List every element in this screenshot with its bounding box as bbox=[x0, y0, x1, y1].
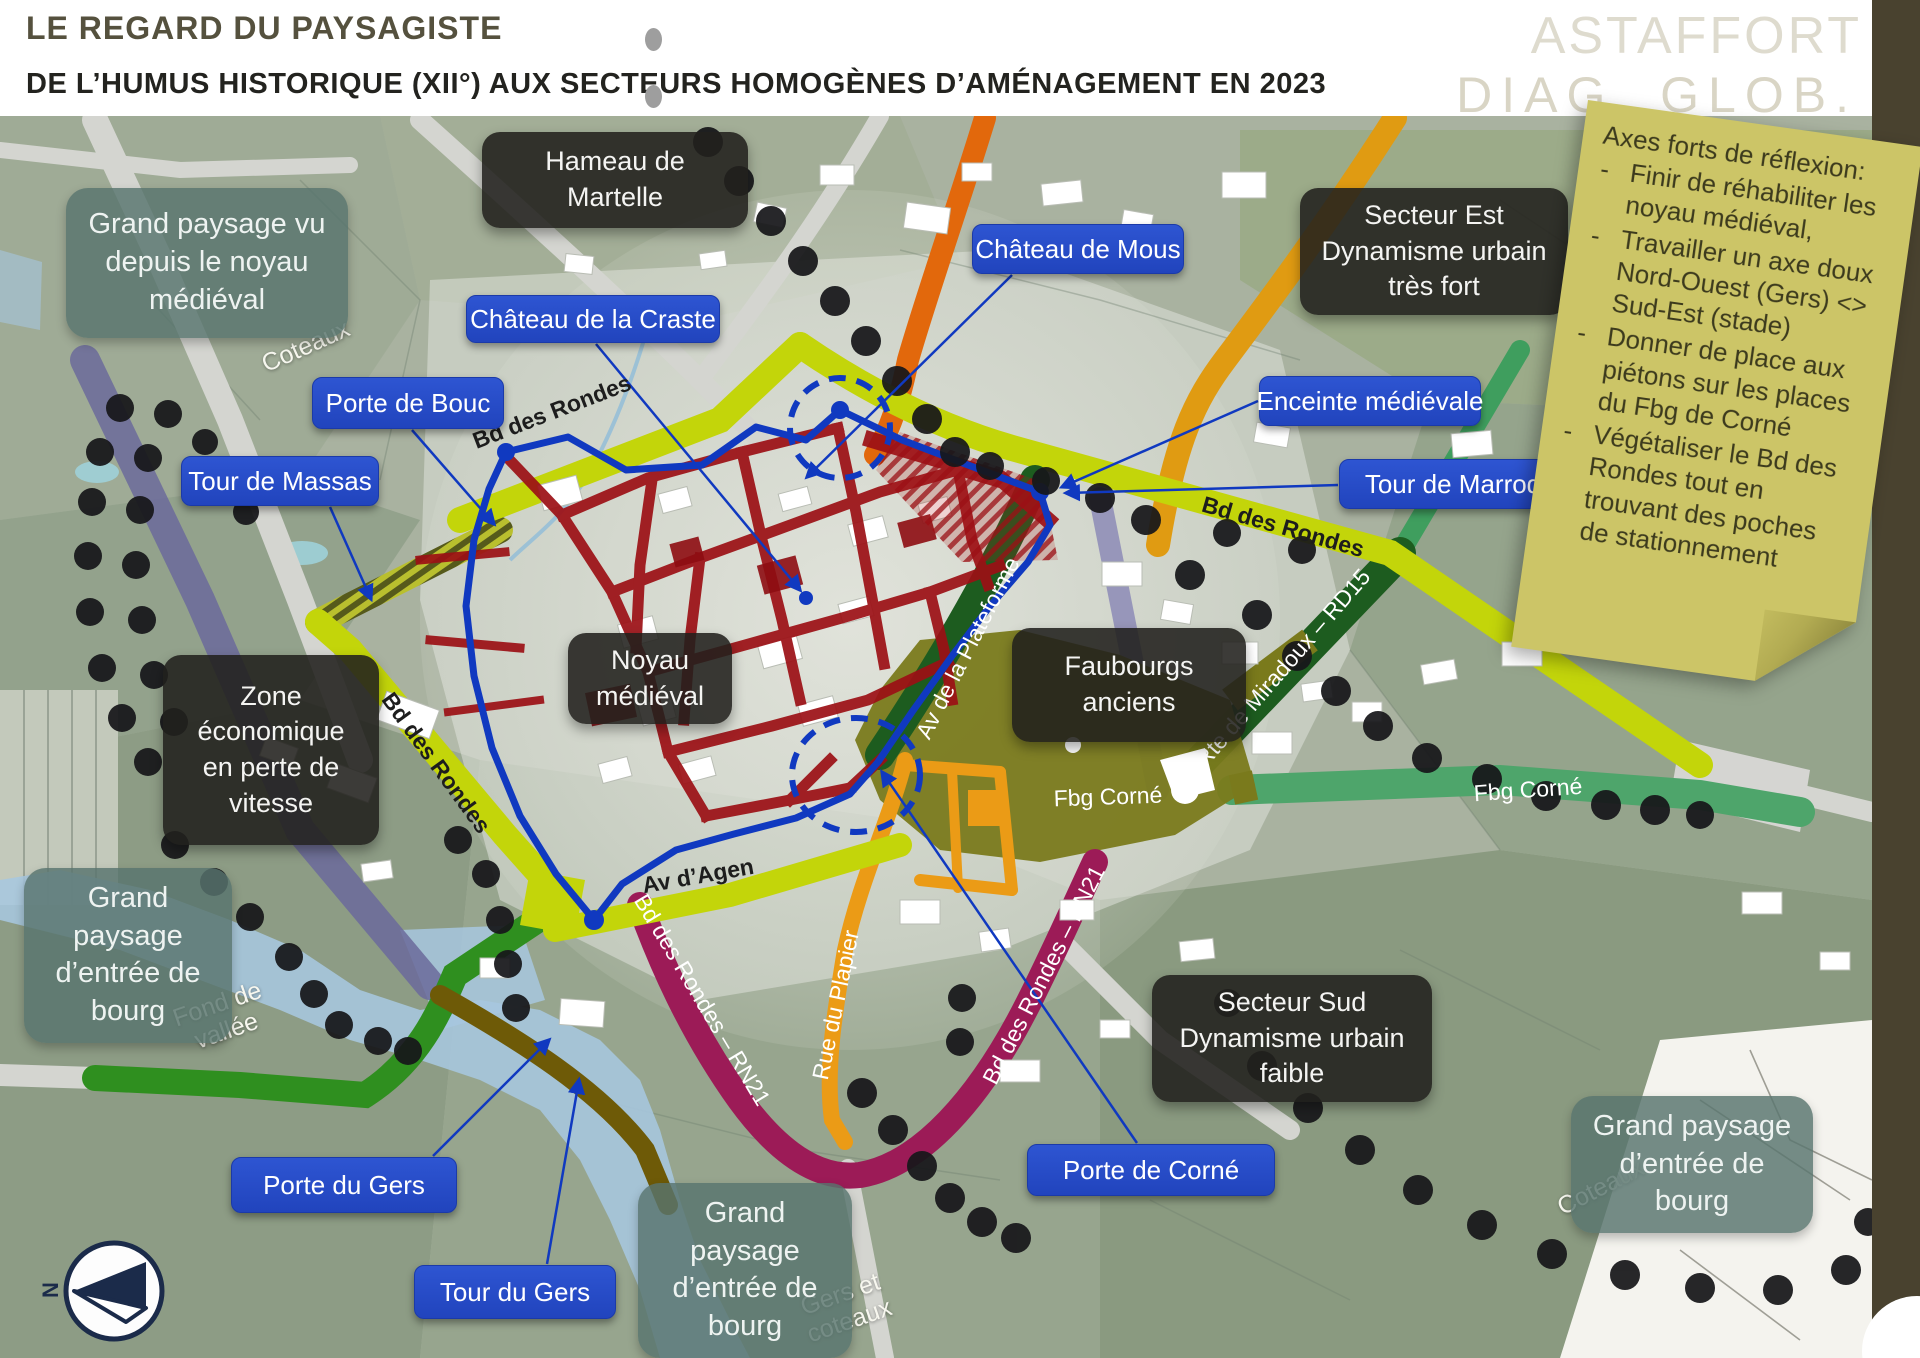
poi-label-chateau-de-la-craste: Château de la Craste bbox=[466, 295, 720, 343]
template-dots bbox=[645, 28, 662, 142]
sector-label-zone-economique: Zone économique en perte de vitesse bbox=[163, 655, 379, 845]
sector-label-hameau-martelle: Hameau de Martelle bbox=[482, 132, 748, 228]
page-title: LE REGARD DU PAYSAGISTE bbox=[26, 10, 502, 47]
poi-label-enceinte-medievale: Enceinte médiévale bbox=[1259, 376, 1481, 426]
landscape-label-nw: Grand paysage vu depuis le noyau médiéva… bbox=[66, 188, 348, 338]
note-folded-corner bbox=[1755, 610, 1856, 694]
poi-label-porte-de-bouc: Porte de Bouc bbox=[312, 377, 504, 429]
watermark-astaffort: ASTAFFORT bbox=[1531, 6, 1862, 66]
landscape-label-south: Grand paysage d’entrée de bourg bbox=[638, 1183, 852, 1358]
landscape-label-southeast: Grand paysage d’entrée de bourg bbox=[1571, 1096, 1813, 1233]
poi-label-tour-de-massas: Tour de Massas bbox=[181, 456, 379, 506]
poi-label-tour-du-gers: Tour du Gers bbox=[414, 1265, 616, 1319]
sector-label-noyau-medieval: Noyau médiéval bbox=[568, 633, 732, 724]
road-label-fbg-corne-olive: Fbg Corné bbox=[1053, 782, 1163, 813]
sector-label-faubourgs-anciens: Faubourgs anciens bbox=[1012, 628, 1246, 742]
sector-label-secteur-sud: Secteur Sud Dynamisme urbain faible bbox=[1152, 975, 1432, 1102]
poi-label-chateau-de-mous: Château de Mous bbox=[972, 224, 1184, 274]
slide: N LE REGARD DU PAYSAGISTE DE L’HUMUS HIS… bbox=[0, 0, 1920, 1358]
poi-label-porte-de-corne: Porte de Corné bbox=[1027, 1144, 1275, 1196]
sector-label-secteur-est: Secteur Est Dynamisme urbain très fort bbox=[1300, 188, 1568, 315]
poi-label-porte-du-gers: Porte du Gers bbox=[231, 1157, 457, 1213]
compass-north-label: N bbox=[38, 1282, 63, 1298]
page-subtitle: DE L’HUMUS HISTORIQUE (XII°) AUX SECTEUR… bbox=[26, 68, 1326, 101]
landscape-label-west: Grand paysage d’entrée de bourg bbox=[24, 868, 232, 1043]
